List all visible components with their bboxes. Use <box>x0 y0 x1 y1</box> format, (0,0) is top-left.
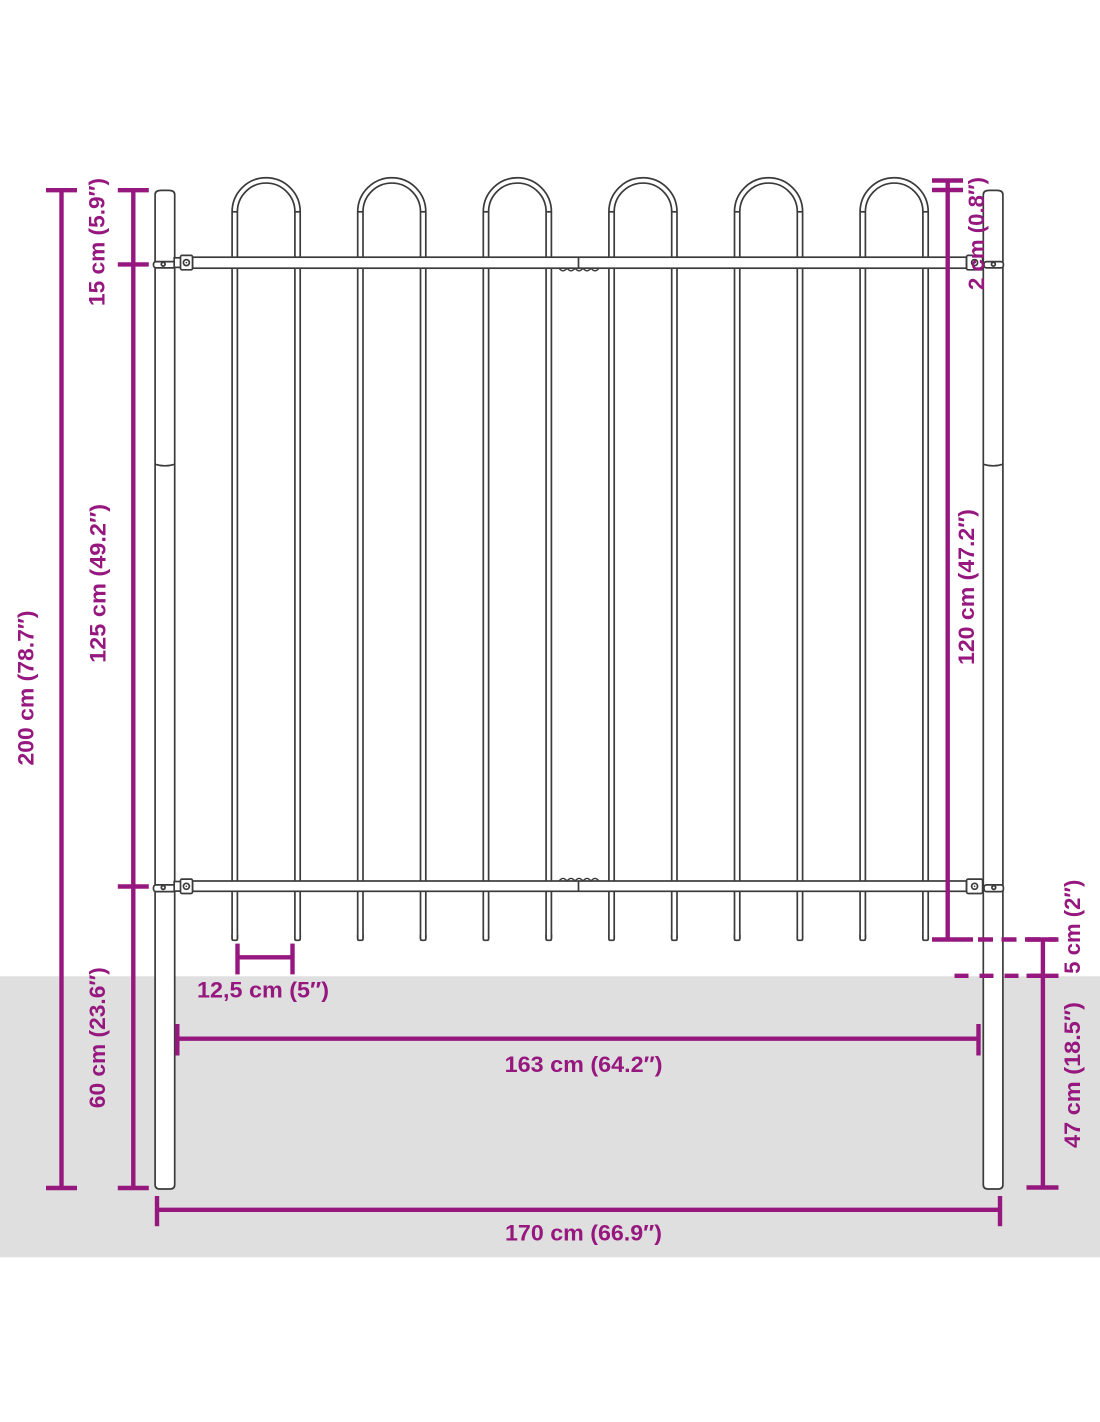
svg-text:60 cm (23.6″): 60 cm (23.6″) <box>85 967 110 1108</box>
svg-text:163 cm (64.2″): 163 cm (64.2″) <box>505 1052 663 1077</box>
svg-text:2 cm (0.8″): 2 cm (0.8″) <box>964 177 989 290</box>
svg-text:120 cm (47.2″): 120 cm (47.2″) <box>954 509 979 665</box>
svg-text:15 cm (5.9″): 15 cm (5.9″) <box>85 178 110 306</box>
svg-text:125 cm (49.2″): 125 cm (49.2″) <box>86 504 111 663</box>
svg-text:200 cm (78.7″): 200 cm (78.7″) <box>14 611 39 766</box>
svg-text:5 cm (2″): 5 cm (2″) <box>1060 880 1085 974</box>
svg-text:170 cm (66.9″): 170 cm (66.9″) <box>505 1220 662 1245</box>
svg-text:47 cm (18.5″): 47 cm (18.5″) <box>1060 1002 1085 1148</box>
svg-text:12,5 cm (5″): 12,5 cm (5″) <box>197 977 329 1002</box>
